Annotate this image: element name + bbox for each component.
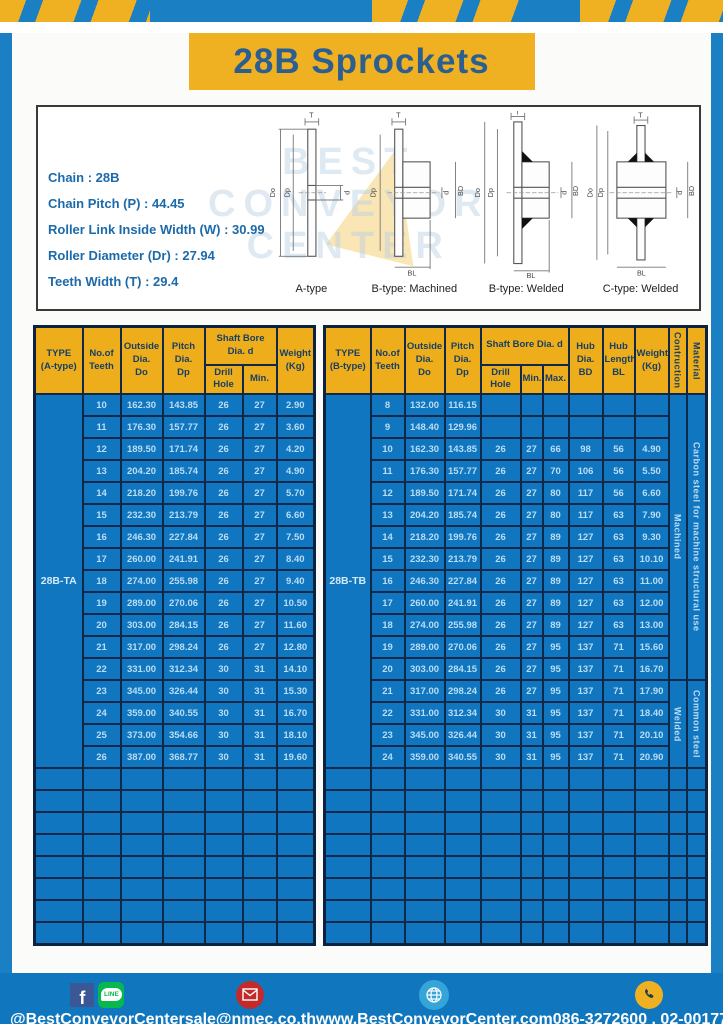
table-cell [205, 790, 243, 812]
table-cell [371, 856, 405, 878]
table-cell [371, 834, 405, 856]
table-cell: 171.74 [445, 482, 481, 504]
table-cell: 4.20 [277, 438, 315, 460]
table-cell: 21 [83, 636, 121, 658]
table-row: 15232.30213.792627891276310.10 [325, 548, 707, 570]
col-teeth: No.of Teeth [83, 327, 121, 395]
hazard-stripes-middle [372, 0, 520, 22]
table-row: 16246.30227.842627891276311.00 [325, 570, 707, 592]
hazard-stripe-bar [0, 0, 723, 22]
table-cell [635, 900, 669, 922]
facebook-handle: @BestConveyorCenter [10, 1011, 185, 1024]
table-cell: 127 [569, 526, 603, 548]
table-cell [635, 812, 669, 834]
table-cell [163, 900, 205, 922]
table-cell: 284.15 [163, 614, 205, 636]
table-cell: 56 [603, 482, 635, 504]
table-cell [83, 768, 121, 790]
table-cell: 27 [243, 438, 277, 460]
table-cell: 11.00 [635, 570, 669, 592]
empty-row [35, 834, 315, 856]
table-cell: 127 [569, 592, 603, 614]
table-cell: 98 [569, 438, 603, 460]
table-cell [481, 878, 521, 900]
table-cell: 7.90 [635, 504, 669, 526]
table-row: 24359.00340.553031951377120.90 [325, 746, 707, 768]
col-drill-hole: Drill Hole [205, 365, 243, 395]
email-address: sale@nmec.co.th [185, 1011, 316, 1024]
svg-text:T: T [515, 111, 520, 117]
table-cell: 27 [521, 614, 543, 636]
table-cell: 127 [569, 614, 603, 636]
table-cell: 20.90 [635, 746, 669, 768]
table-cell [635, 768, 669, 790]
table-cell: 26 [481, 658, 521, 680]
table-cell: 26 [205, 548, 243, 570]
table-cell: 373.00 [121, 724, 163, 746]
table-cell: 26 [205, 394, 243, 416]
table-cell: 227.84 [163, 526, 205, 548]
table-cell: 189.50 [121, 438, 163, 460]
col-hub-length: Hub Length BL [603, 327, 635, 395]
svg-text:BD: BD [456, 186, 465, 196]
table-cell: 95 [543, 746, 569, 768]
table-cell: 30 [205, 680, 243, 702]
table-cell: 15.60 [635, 636, 669, 658]
table-cell: 27 [521, 504, 543, 526]
table-cell: 5.70 [277, 482, 315, 504]
table-cell: 30 [205, 658, 243, 680]
table-cell: 31 [243, 680, 277, 702]
table-cell: 30 [205, 702, 243, 724]
table-row: 17260.00241.912627891276312.00 [325, 592, 707, 614]
table-cell [83, 790, 121, 812]
spec-roller-dia: Roller Diameter (Dr) : 27.94 [48, 243, 265, 269]
table-cell: 199.76 [445, 526, 481, 548]
table-cell: 26 [481, 570, 521, 592]
table-cell: 27 [243, 526, 277, 548]
table-cell [277, 922, 315, 944]
material-cell: Common steel [687, 680, 707, 768]
table-cell: 289.00 [405, 636, 445, 658]
table-cell [121, 856, 163, 878]
table-cell [243, 922, 277, 944]
table-cell: 71 [603, 724, 635, 746]
table-cell [481, 900, 521, 922]
table-cell: 162.30 [405, 438, 445, 460]
spec-tables: TYPE (A-type) No.of Teeth Outside Dia. D… [33, 325, 711, 946]
table-cell: 6.60 [277, 504, 315, 526]
table-cell [121, 922, 163, 944]
svg-text:T: T [309, 111, 314, 119]
table-cell [603, 856, 635, 878]
table-cell: 18.40 [635, 702, 669, 724]
table-cell: 27 [243, 460, 277, 482]
table-cell: 157.77 [163, 416, 205, 438]
table-cell [543, 768, 569, 790]
line-icon: LINE [98, 982, 124, 1008]
table-cell: 19 [371, 636, 405, 658]
table-cell: 185.74 [445, 504, 481, 526]
table-cell [243, 812, 277, 834]
table-cell: 9.30 [635, 526, 669, 548]
table-cell: 255.98 [163, 570, 205, 592]
table-cell [521, 394, 543, 416]
table-cell [603, 922, 635, 944]
svg-text:BD: BD [571, 186, 580, 196]
table-cell [35, 900, 83, 922]
table-cell: 27 [521, 482, 543, 504]
table-cell: 26 [205, 526, 243, 548]
caption-a-type: A-type [296, 283, 328, 295]
website-url: www.BestConveyorCenter.com [316, 1011, 553, 1024]
table-cell [405, 856, 445, 878]
table-cell: 8 [371, 394, 405, 416]
table-cell [635, 922, 669, 944]
table-cell [635, 416, 669, 438]
table-cell: 26 [481, 526, 521, 548]
svg-text:Dp: Dp [486, 188, 495, 197]
table-cell [35, 790, 83, 812]
table-cell: 171.74 [163, 438, 205, 460]
table-cell: 30 [481, 746, 521, 768]
table-cell: 331.00 [121, 658, 163, 680]
table-cell [163, 812, 205, 834]
table-cell [687, 856, 707, 878]
col-type: TYPE (B-type) [325, 327, 371, 395]
table-cell: 137 [569, 636, 603, 658]
table-cell: 137 [569, 680, 603, 702]
table-cell [205, 878, 243, 900]
b-type-machined-drawing: T Dp d BD BL [362, 111, 466, 279]
table-cell [569, 768, 603, 790]
table-cell [445, 878, 481, 900]
table-cell: 27 [243, 394, 277, 416]
table-cell: 31 [521, 702, 543, 724]
table-cell: 20.10 [635, 724, 669, 746]
table-cell [405, 812, 445, 834]
table-row: 22331.00312.343031951377118.40 [325, 702, 707, 724]
table-cell: 12.80 [277, 636, 315, 658]
table-cell: 189.50 [405, 482, 445, 504]
table-cell [243, 900, 277, 922]
table-cell [687, 790, 707, 812]
svg-text:d: d [441, 191, 450, 195]
table-cell: 15 [83, 504, 121, 526]
table-cell: 117 [569, 482, 603, 504]
table-cell [371, 768, 405, 790]
hazard-stripes-right [580, 0, 723, 22]
col-outside-dia: Outside Dia. Do [121, 327, 163, 395]
chain-specs: Chain : 28B Chain Pitch (P) : 44.45 Roll… [48, 165, 265, 295]
table-row: 28B-TB8132.00116.15MachinedCarbon steel … [325, 394, 707, 416]
table-cell [35, 768, 83, 790]
table-cell [521, 790, 543, 812]
b-type-welded-drawing: T Do Dp d BD [472, 111, 581, 279]
table-cell: 176.30 [405, 460, 445, 482]
col-weight: Weight (Kg) [635, 327, 669, 395]
table-cell: 27 [521, 636, 543, 658]
table-cell: 16 [371, 570, 405, 592]
empty-row [35, 790, 315, 812]
figure-c-type-welded: T Do Dp d BD [586, 111, 695, 307]
table-cell: 13 [83, 460, 121, 482]
table-cell: 27 [243, 504, 277, 526]
table-row: 11176.30157.77262770106565.50 [325, 460, 707, 482]
table-row: 13204.20185.74262780117637.90 [325, 504, 707, 526]
table-cell: 10 [371, 438, 405, 460]
table-cell [521, 834, 543, 856]
table-cell [121, 878, 163, 900]
svg-text:BL: BL [526, 271, 535, 279]
table-cell: 63 [603, 570, 635, 592]
contact-footer: f LINE @BestConveyorCenter sale@nmec.co.… [0, 973, 723, 1024]
table-cell [277, 768, 315, 790]
svg-text:BL: BL [637, 268, 646, 277]
svg-text:BL: BL [408, 268, 417, 277]
table-cell: 137 [569, 724, 603, 746]
table-cell [543, 878, 569, 900]
table-cell [205, 768, 243, 790]
svg-text:Do: Do [473, 188, 482, 197]
table-cell: 12.00 [635, 592, 669, 614]
table-cell: 116.15 [445, 394, 481, 416]
b-type-table-body: 28B-TB8132.00116.15MachinedCarbon steel … [325, 394, 707, 944]
empty-row [325, 812, 707, 834]
svg-text:Dp: Dp [283, 188, 292, 197]
table-cell: 7.50 [277, 526, 315, 548]
table-cell [277, 812, 315, 834]
table-cell: 13 [371, 504, 405, 526]
table-cell: 31 [521, 724, 543, 746]
table-cell [325, 834, 371, 856]
table-cell [603, 790, 635, 812]
table-cell: 21 [371, 680, 405, 702]
table-cell [669, 878, 687, 900]
table-cell [371, 878, 405, 900]
table-cell: 17.90 [635, 680, 669, 702]
table-cell [521, 900, 543, 922]
table-row: 19289.00270.062627951377115.60 [325, 636, 707, 658]
table-cell: 27 [243, 482, 277, 504]
email-icon [236, 981, 264, 1009]
table-cell [121, 900, 163, 922]
table-cell [83, 878, 121, 900]
empty-row [35, 900, 315, 922]
table-cell [325, 878, 371, 900]
empty-row [325, 834, 707, 856]
table-cell [481, 768, 521, 790]
table-cell [543, 834, 569, 856]
table-cell: 11 [83, 416, 121, 438]
table-cell: 137 [569, 746, 603, 768]
table-cell: 23 [83, 680, 121, 702]
svg-text:Do: Do [586, 188, 594, 197]
table-cell: 95 [543, 724, 569, 746]
table-cell [569, 900, 603, 922]
table-cell [543, 394, 569, 416]
table-cell: 13.00 [635, 614, 669, 636]
table-cell: 340.55 [445, 746, 481, 768]
table-cell: 298.24 [445, 680, 481, 702]
globe-icon [419, 980, 449, 1010]
table-row: 12189.50171.74262780117566.60 [325, 482, 707, 504]
table-cell [481, 856, 521, 878]
table-row: 14218.20199.76262789127639.30 [325, 526, 707, 548]
table-cell [277, 878, 315, 900]
table-cell: 27 [243, 570, 277, 592]
table-cell: 27 [521, 592, 543, 614]
svg-text:Dp: Dp [596, 188, 605, 197]
table-cell [687, 922, 707, 944]
table-cell: 143.85 [163, 394, 205, 416]
table-cell [163, 768, 205, 790]
table-cell: 326.44 [163, 680, 205, 702]
svg-text:d: d [559, 191, 568, 195]
col-min: Min. [521, 365, 543, 395]
table-cell [35, 878, 83, 900]
svg-text:d: d [343, 191, 352, 195]
table-cell: 26 [205, 614, 243, 636]
title-banner: 28B Sprockets [189, 33, 535, 90]
table-cell [569, 922, 603, 944]
table-cell: 71 [603, 746, 635, 768]
table-cell: 241.91 [445, 592, 481, 614]
table-cell: 4.90 [277, 460, 315, 482]
table-cell: 345.00 [405, 724, 445, 746]
table-cell: 143.85 [445, 438, 481, 460]
table-cell [569, 416, 603, 438]
table-cell: 89 [543, 592, 569, 614]
table-cell [669, 768, 687, 790]
page-body: 28B Sprockets BEST CONVEYOR CENTER Chain… [0, 33, 723, 973]
footer-website: www.BestConveyorCenter.com [316, 980, 553, 1024]
table-cell [603, 834, 635, 856]
table-cell: 26 [205, 504, 243, 526]
table-cell: 31 [243, 658, 277, 680]
table-cell: 2.90 [277, 394, 315, 416]
b-type-table-header: TYPE (B-type) No.of Teeth Outside Dia. D… [325, 327, 707, 395]
table-cell: 27 [521, 438, 543, 460]
table-cell [121, 812, 163, 834]
diagram-box: BEST CONVEYOR CENTER Chain : 28B Chain P… [36, 105, 701, 311]
table-cell: 26 [205, 460, 243, 482]
table-cell [521, 922, 543, 944]
svg-text:Do: Do [268, 188, 277, 197]
table-cell: 19 [83, 592, 121, 614]
table-cell [445, 834, 481, 856]
table-cell [521, 768, 543, 790]
table-cell: 274.00 [121, 570, 163, 592]
table-cell [35, 922, 83, 944]
table-cell: 14.10 [277, 658, 315, 680]
table-cell [445, 790, 481, 812]
table-cell: 9 [371, 416, 405, 438]
table-cell: 71 [603, 658, 635, 680]
table-cell [669, 812, 687, 834]
table-cell [635, 790, 669, 812]
facebook-icon: f [70, 983, 94, 1007]
empty-row [325, 878, 707, 900]
table-cell: 232.30 [405, 548, 445, 570]
table-cell: 204.20 [405, 504, 445, 526]
table-cell [371, 812, 405, 834]
table-row: 20303.00284.152627951377116.70 [325, 658, 707, 680]
table-cell: 246.30 [121, 526, 163, 548]
table-cell [603, 416, 635, 438]
table-cell [445, 812, 481, 834]
table-cell [603, 900, 635, 922]
table-cell: 317.00 [121, 636, 163, 658]
col-teeth: No.of Teeth [371, 327, 405, 395]
table-cell [481, 922, 521, 944]
col-hub-dia: Hub Dia. BD [569, 327, 603, 395]
table-cell: 137 [569, 658, 603, 680]
table-cell: 359.00 [121, 702, 163, 724]
col-weight: Weight (Kg) [277, 327, 315, 395]
table-cell [371, 922, 405, 944]
table-cell: 331.00 [405, 702, 445, 724]
table-cell: 148.40 [405, 416, 445, 438]
table-cell: 27 [243, 636, 277, 658]
table-cell [163, 878, 205, 900]
table-cell: 31 [243, 724, 277, 746]
sprocket-figures: T Do Dp d A-type [266, 111, 695, 307]
table-cell: 312.34 [445, 702, 481, 724]
table-cell [405, 768, 445, 790]
spec-chain: Chain : 28B [48, 165, 265, 191]
table-cell: 387.00 [121, 746, 163, 768]
table-cell [635, 834, 669, 856]
table-cell: 30 [205, 724, 243, 746]
table-cell [205, 856, 243, 878]
table-cell [325, 790, 371, 812]
table-cell: 18 [371, 614, 405, 636]
empty-row [35, 812, 315, 834]
table-cell: 270.06 [445, 636, 481, 658]
table-cell: 24 [371, 746, 405, 768]
table-cell: 284.15 [445, 658, 481, 680]
table-cell [35, 856, 83, 878]
svg-text:T: T [638, 111, 643, 119]
figure-b-type-machined: T Dp d BD BL B-type: Machined [362, 111, 466, 307]
table-cell: 106 [569, 460, 603, 482]
table-cell: 71 [603, 636, 635, 658]
table-cell: 12 [83, 438, 121, 460]
svg-text:BD: BD [687, 186, 695, 196]
empty-row [35, 878, 315, 900]
table-cell [687, 878, 707, 900]
table-cell [83, 922, 121, 944]
table-cell: 26 [481, 460, 521, 482]
table-cell: 80 [543, 504, 569, 526]
table-cell: 27 [243, 614, 277, 636]
table-cell [243, 768, 277, 790]
construction-cell: Machined [669, 394, 687, 680]
table-cell: 27 [243, 592, 277, 614]
table-cell: 22 [83, 658, 121, 680]
table-cell [481, 812, 521, 834]
table-cell: 22 [371, 702, 405, 724]
table-cell [445, 768, 481, 790]
table-cell [325, 922, 371, 944]
table-cell: 26 [205, 438, 243, 460]
table-cell: 326.44 [445, 724, 481, 746]
col-type: TYPE (A-type) [35, 327, 83, 395]
table-cell: 26 [481, 482, 521, 504]
table-cell: 16.70 [635, 658, 669, 680]
empty-row [325, 768, 707, 790]
